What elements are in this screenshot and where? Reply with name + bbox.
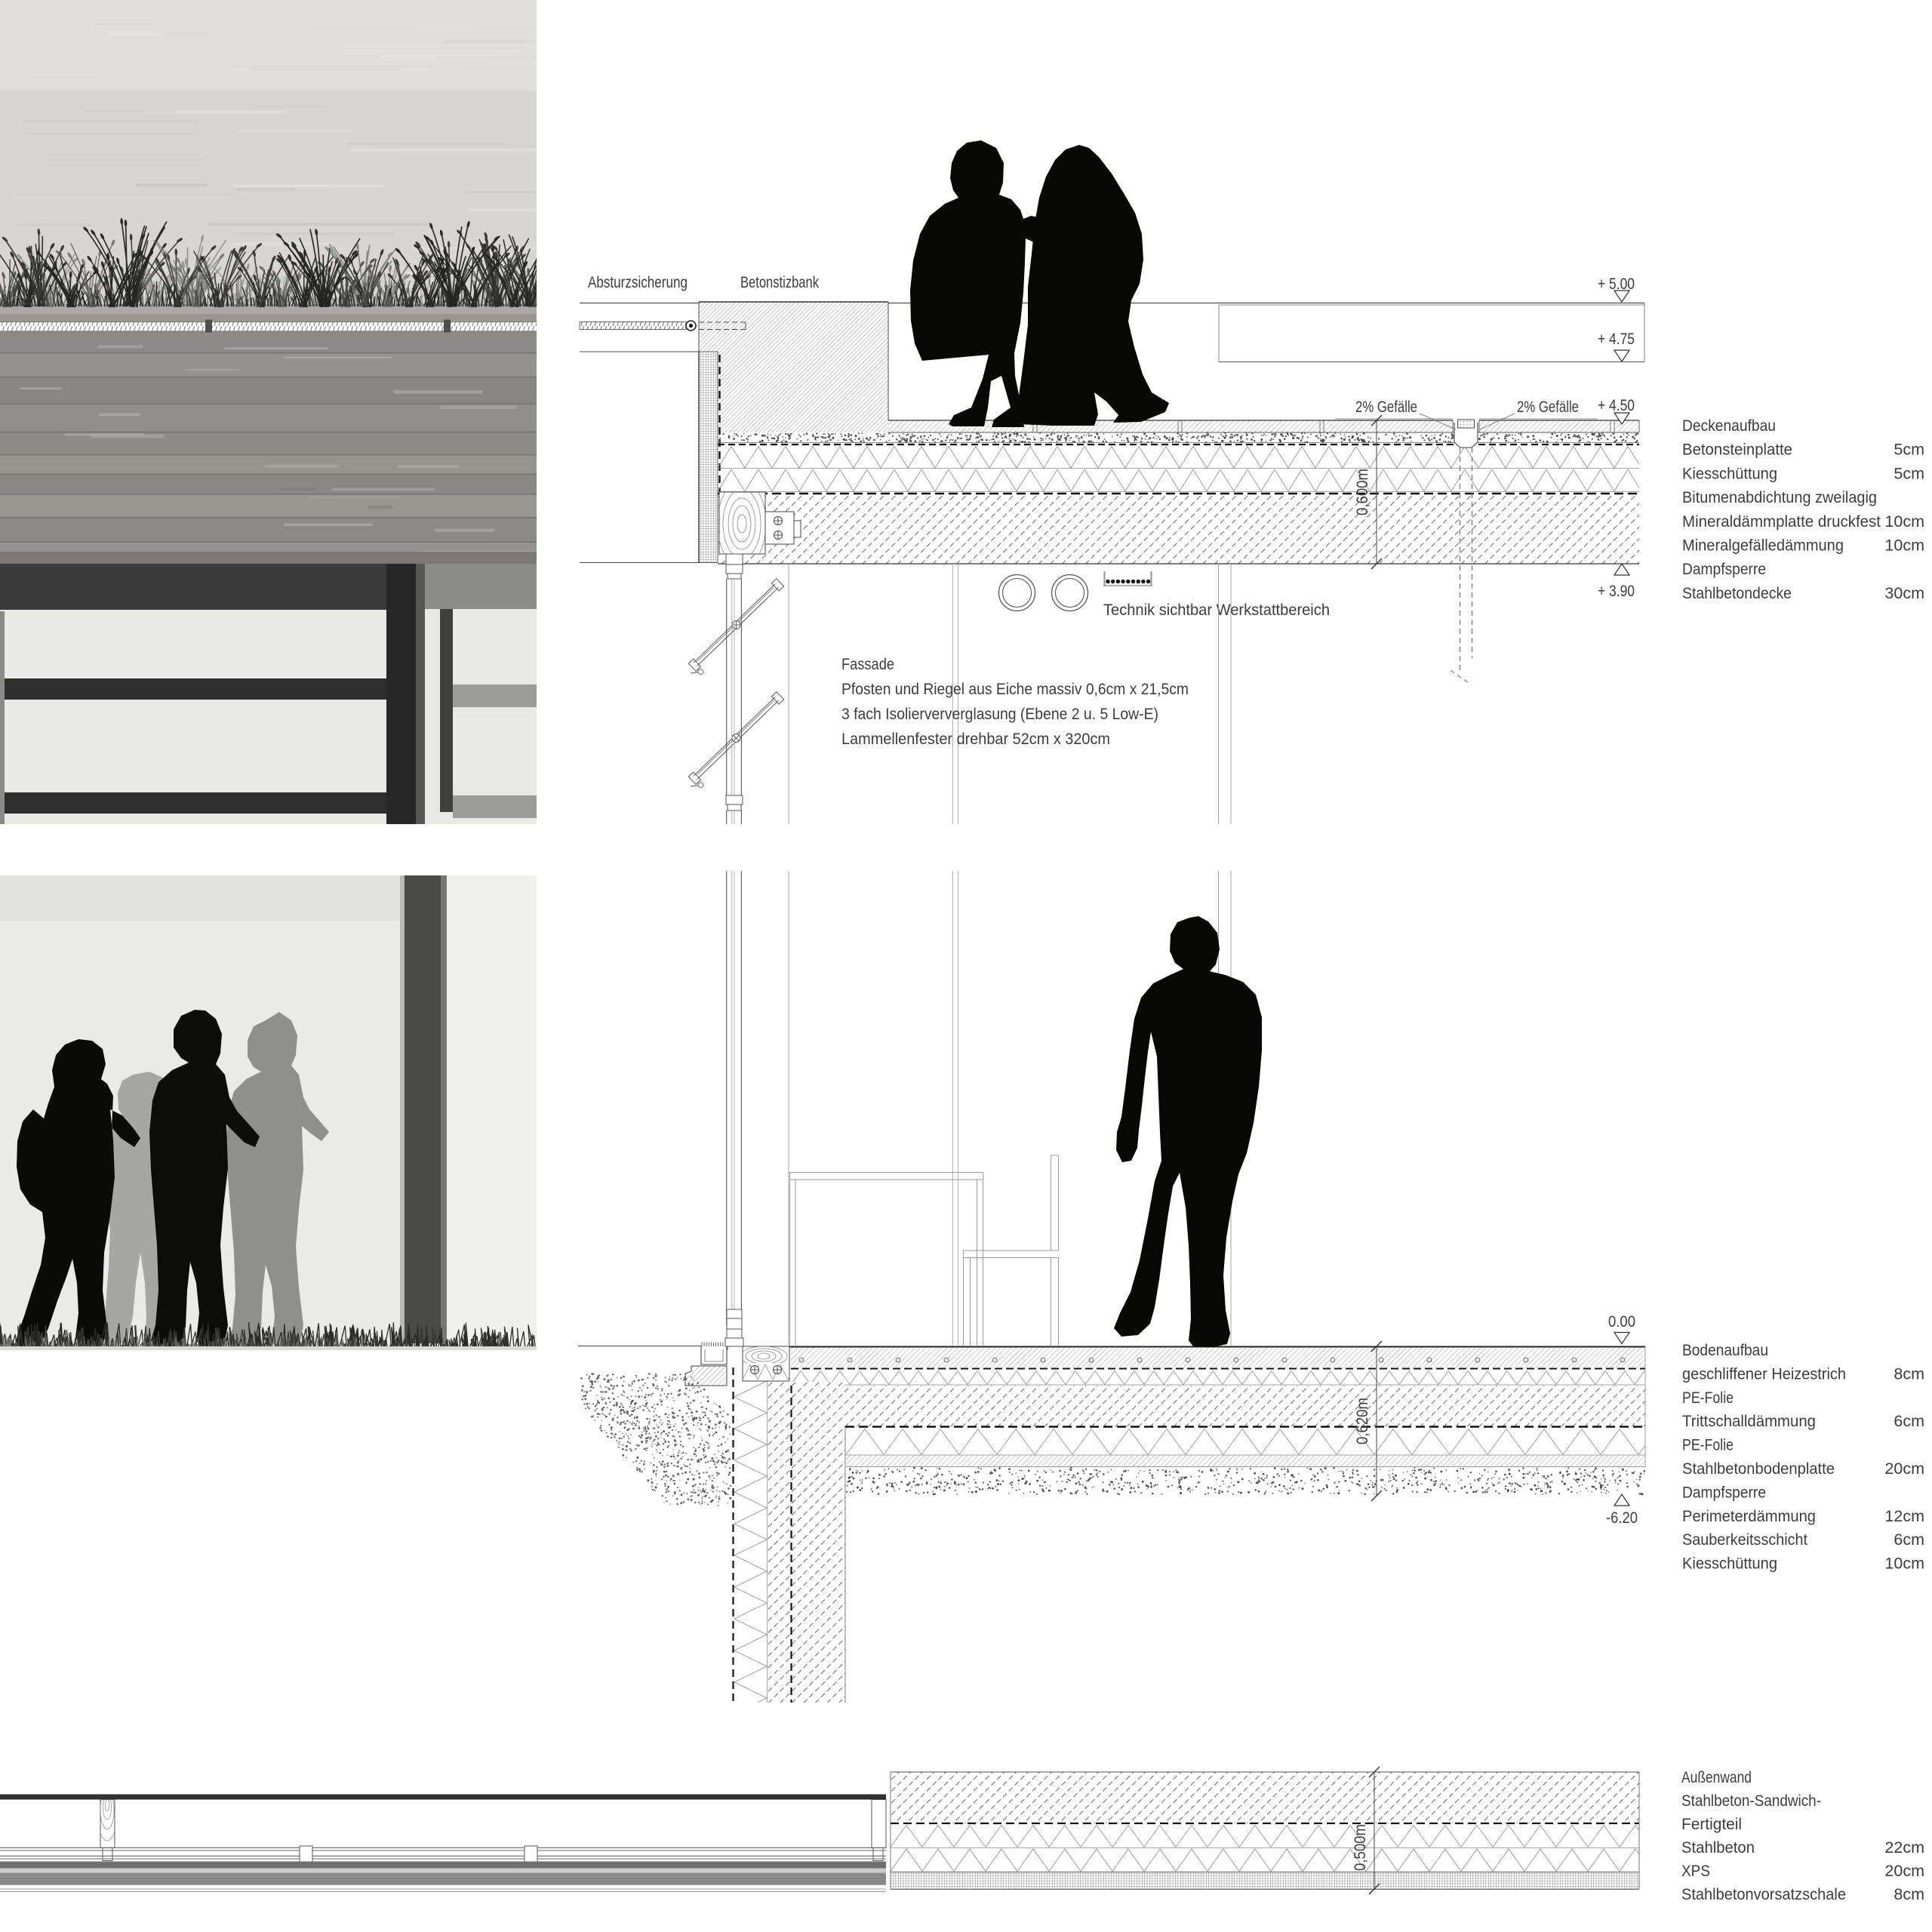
svg-text:22cm: 22cm <box>1884 1838 1924 1857</box>
svg-text:PE-Folie: PE-Folie <box>1682 1436 1734 1454</box>
svg-text:Stahlbetondecke: Stahlbetondecke <box>1682 584 1792 602</box>
svg-text:5cm: 5cm <box>1894 464 1924 482</box>
svg-text:Stahlbeton-Sandwich-: Stahlbeton-Sandwich- <box>1681 1792 1821 1810</box>
svg-text:geschliffener Heizestrich: geschliffener Heizestrich <box>1682 1364 1846 1383</box>
svg-text:Stahlbetonbodenplatte: Stahlbetonbodenplatte <box>1682 1460 1835 1478</box>
svg-text:0,500m: 0,500m <box>1352 1824 1369 1871</box>
svg-text:Pfosten und Riegel aus Eiche m: Pfosten und Riegel aus Eiche massiv 0,6c… <box>841 680 1189 698</box>
svg-text:Dampfsperre: Dampfsperre <box>1682 1483 1766 1501</box>
svg-text:8cm: 8cm <box>1894 1364 1924 1383</box>
svg-text:Mineraldämmplatte druckfest: Mineraldämmplatte druckfest <box>1682 512 1881 531</box>
svg-text:Stahlbeton: Stahlbeton <box>1681 1838 1755 1857</box>
svg-text:10cm: 10cm <box>1884 512 1924 531</box>
svg-text:+ 3.90: + 3.90 <box>1598 582 1635 600</box>
svg-text:2% Gefälle: 2% Gefälle <box>1355 398 1417 416</box>
svg-text:Stahlbetonvorsatzschale: Stahlbetonvorsatzschale <box>1681 1885 1846 1903</box>
svg-text:Außenwand: Außenwand <box>1681 1768 1752 1786</box>
svg-text:Betonstizbank: Betonstizbank <box>740 273 819 291</box>
svg-text:Lammellenfester drehbar 52cm x: Lammellenfester drehbar 52cm x 320cm <box>841 730 1110 748</box>
svg-text:Absturzsicherung: Absturzsicherung <box>588 273 688 291</box>
svg-text:-6.20: -6.20 <box>1606 1509 1638 1527</box>
svg-text:Dampfsperre: Dampfsperre <box>1682 560 1766 578</box>
svg-text:10cm: 10cm <box>1884 1555 1924 1573</box>
svg-text:Bitumenabdichtung zweilagig: Bitumenabdichtung zweilagig <box>1682 488 1877 506</box>
svg-text:Fertigteil: Fertigteil <box>1681 1815 1742 1833</box>
svg-text:Betonsteinplatte: Betonsteinplatte <box>1682 441 1792 459</box>
svg-text:8cm: 8cm <box>1894 1885 1924 1903</box>
svg-text:Trittschalldämmung: Trittschalldämmung <box>1682 1412 1816 1430</box>
svg-text:2% Gefälle: 2% Gefälle <box>1517 398 1579 416</box>
svg-text:Kiesschüttung: Kiesschüttung <box>1682 1555 1777 1573</box>
svg-text:Perimeterdämmung: Perimeterdämmung <box>1682 1507 1816 1525</box>
svg-text:6cm: 6cm <box>1894 1531 1924 1549</box>
svg-text:Bodenaufbau: Bodenaufbau <box>1682 1341 1768 1359</box>
svg-text:6cm: 6cm <box>1894 1412 1924 1430</box>
svg-text:+ 4.75: + 4.75 <box>1598 330 1635 348</box>
svg-text:Mineralgefälledämmung: Mineralgefälledämmung <box>1682 537 1844 555</box>
svg-text:20cm: 20cm <box>1884 1460 1924 1478</box>
svg-text:+ 4.50: + 4.50 <box>1598 396 1635 414</box>
svg-text:0,620m: 0,620m <box>1354 1398 1371 1444</box>
svg-text:Kiesschüttung: Kiesschüttung <box>1682 464 1777 482</box>
svg-text:Technik sichtbar Werkstattbere: Technik sichtbar Werkstattbereich <box>1103 601 1330 619</box>
svg-text:XPS: XPS <box>1681 1862 1710 1880</box>
svg-text:Deckenaufbau: Deckenaufbau <box>1682 417 1776 435</box>
svg-text:Fassade: Fassade <box>841 655 894 673</box>
svg-text:0.00: 0.00 <box>1608 1312 1635 1331</box>
svg-text:10cm: 10cm <box>1884 537 1924 555</box>
svg-text:0,600m: 0,600m <box>1354 469 1371 515</box>
svg-text:3 fach Isolierververglasung (E: 3 fach Isolierververglasung (Ebene 2 u. … <box>841 705 1158 723</box>
svg-text:12cm: 12cm <box>1884 1507 1924 1525</box>
svg-text:5cm: 5cm <box>1894 441 1924 459</box>
svg-text:Sauberkeitsschicht: Sauberkeitsschicht <box>1682 1531 1807 1549</box>
svg-text:30cm: 30cm <box>1884 584 1924 602</box>
svg-text:PE-Folie: PE-Folie <box>1682 1389 1734 1407</box>
svg-text:20cm: 20cm <box>1884 1862 1924 1880</box>
